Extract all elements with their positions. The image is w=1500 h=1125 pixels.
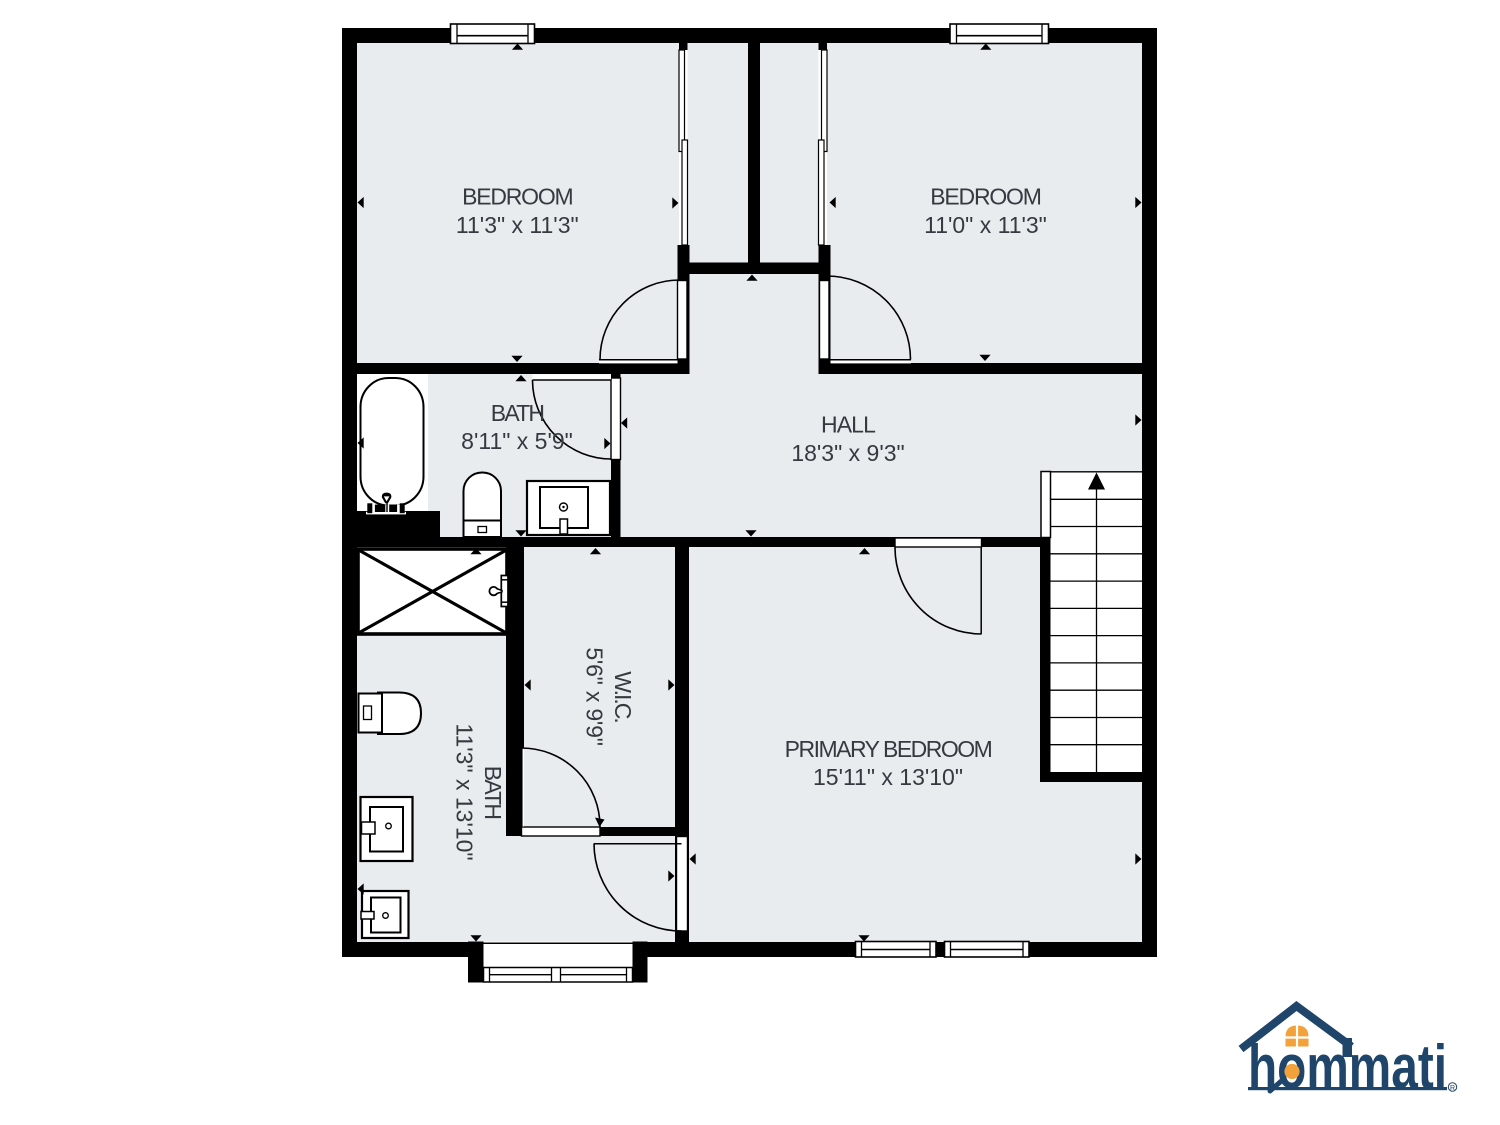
svg-text:W.I.C.: W.I.C. [610,671,636,722]
svg-text:R: R [1450,1085,1455,1092]
svg-text:8'11" x 5'9": 8'11" x 5'9" [461,428,573,454]
svg-text:11'0" x 11'3": 11'0" x 11'3" [924,212,1047,238]
svg-text:11'3" x 13'10": 11'3" x 13'10" [452,723,478,860]
svg-text:5'6" x 9'9": 5'6" x 9'9" [582,647,608,745]
svg-text:18'3" x 9'3": 18'3" x 9'3" [791,440,904,466]
svg-text:PRIMARY BEDROOM: PRIMARY BEDROOM [785,736,992,762]
svg-text:BEDROOM: BEDROOM [462,184,572,210]
svg-text:BATH: BATH [480,766,506,819]
svg-text:HALL: HALL [821,412,876,438]
svg-text:BATH: BATH [491,400,544,426]
svg-text:hommati: hommati [1248,1032,1447,1101]
svg-text:11'3" x 11'3": 11'3" x 11'3" [456,212,579,238]
svg-text:15'11" x 13'10": 15'11" x 13'10" [813,764,963,790]
svg-text:BEDROOM: BEDROOM [930,184,1040,210]
